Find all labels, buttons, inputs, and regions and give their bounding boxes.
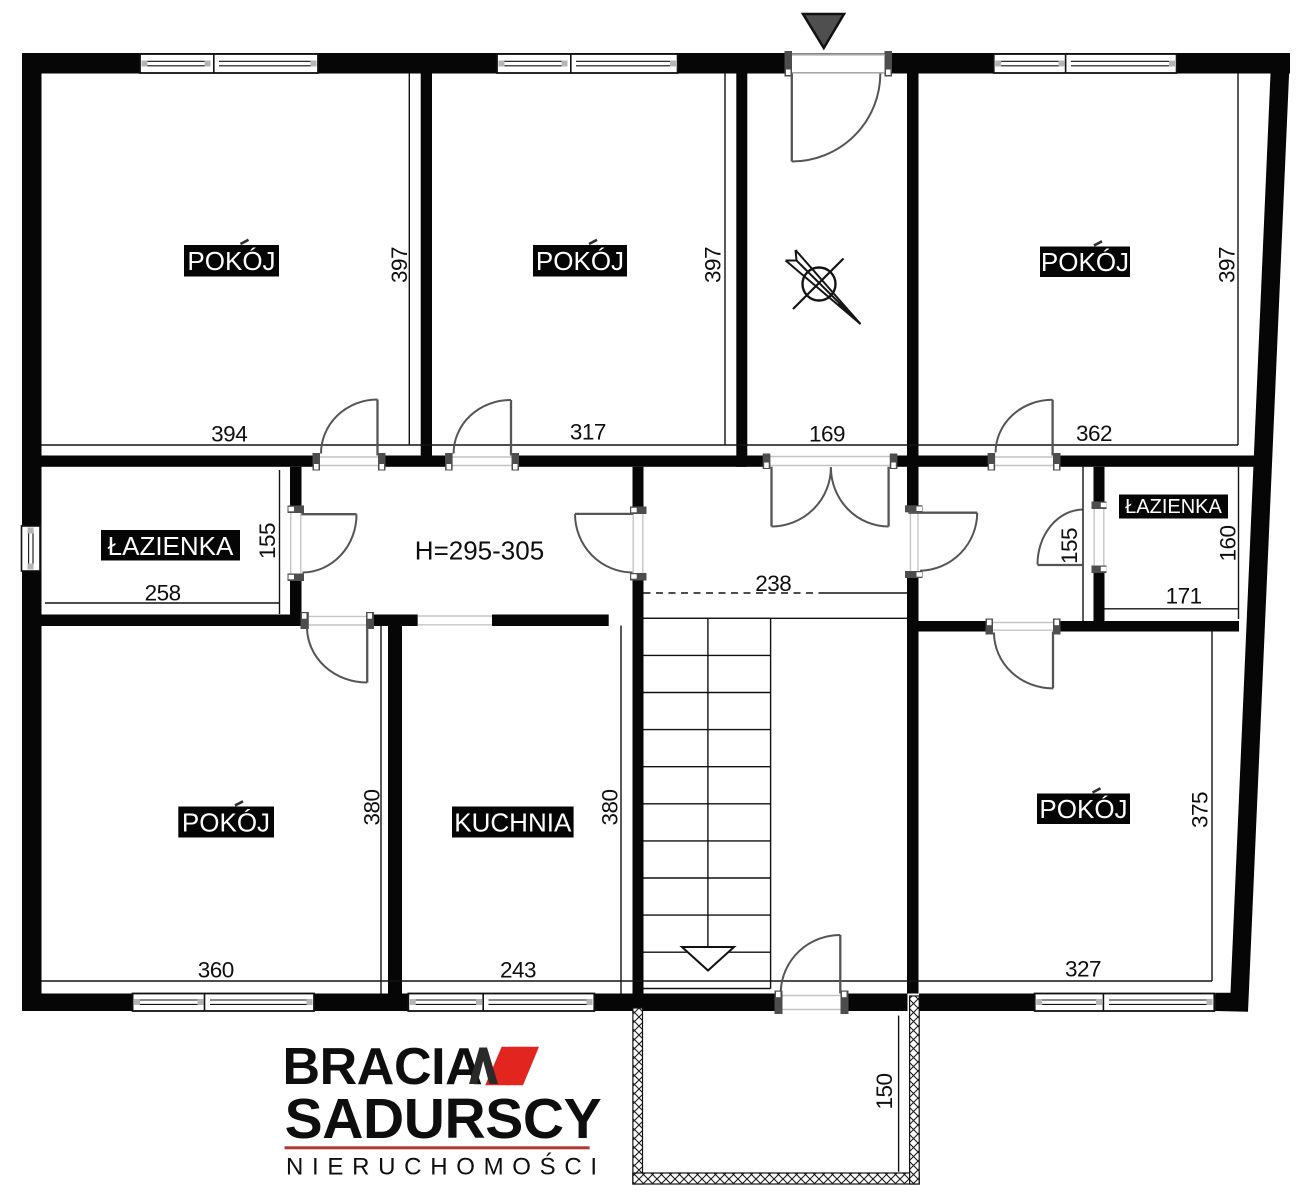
svg-text:SADURSCY: SADURSCY <box>285 1087 602 1151</box>
svg-text:243: 243 <box>500 958 536 983</box>
svg-text:H=295-305: H=295-305 <box>415 536 544 566</box>
svg-text:375: 375 <box>1188 792 1213 828</box>
svg-text:171: 171 <box>1166 584 1202 609</box>
svg-text:397: 397 <box>701 247 726 283</box>
svg-text:POKÓJ: POKÓJ <box>536 246 624 276</box>
svg-text:POKÓJ: POKÓJ <box>1039 794 1127 824</box>
svg-text:169: 169 <box>809 422 845 447</box>
svg-text:397: 397 <box>1215 247 1240 283</box>
svg-text:KUCHNIA: KUCHNIA <box>454 808 572 838</box>
svg-text:POKÓJ: POKÓJ <box>182 808 270 838</box>
svg-text:238: 238 <box>755 571 791 596</box>
svg-text:150: 150 <box>872 1073 897 1109</box>
svg-text:317: 317 <box>570 420 606 445</box>
svg-text:327: 327 <box>1065 957 1101 982</box>
svg-text:360: 360 <box>198 958 234 983</box>
svg-text:ŁAZIENKA: ŁAZIENKA <box>1125 496 1222 518</box>
svg-text:362: 362 <box>1076 421 1112 446</box>
svg-text:155: 155 <box>1057 528 1082 564</box>
svg-text:394: 394 <box>211 422 247 447</box>
svg-text:380: 380 <box>360 789 385 825</box>
svg-text:ŁAZIENKA: ŁAZIENKA <box>108 531 234 561</box>
svg-text:POKÓJ: POKÓJ <box>1041 247 1129 277</box>
svg-text:397: 397 <box>387 247 412 283</box>
svg-text:POKÓJ: POKÓJ <box>187 246 275 276</box>
svg-text:258: 258 <box>145 581 181 606</box>
svg-text:155: 155 <box>255 523 280 559</box>
svg-text:380: 380 <box>598 789 623 825</box>
svg-text:NIERUCHOMOŚCI: NIERUCHOMOŚCI <box>286 1153 606 1181</box>
svg-text:160: 160 <box>1216 525 1241 561</box>
